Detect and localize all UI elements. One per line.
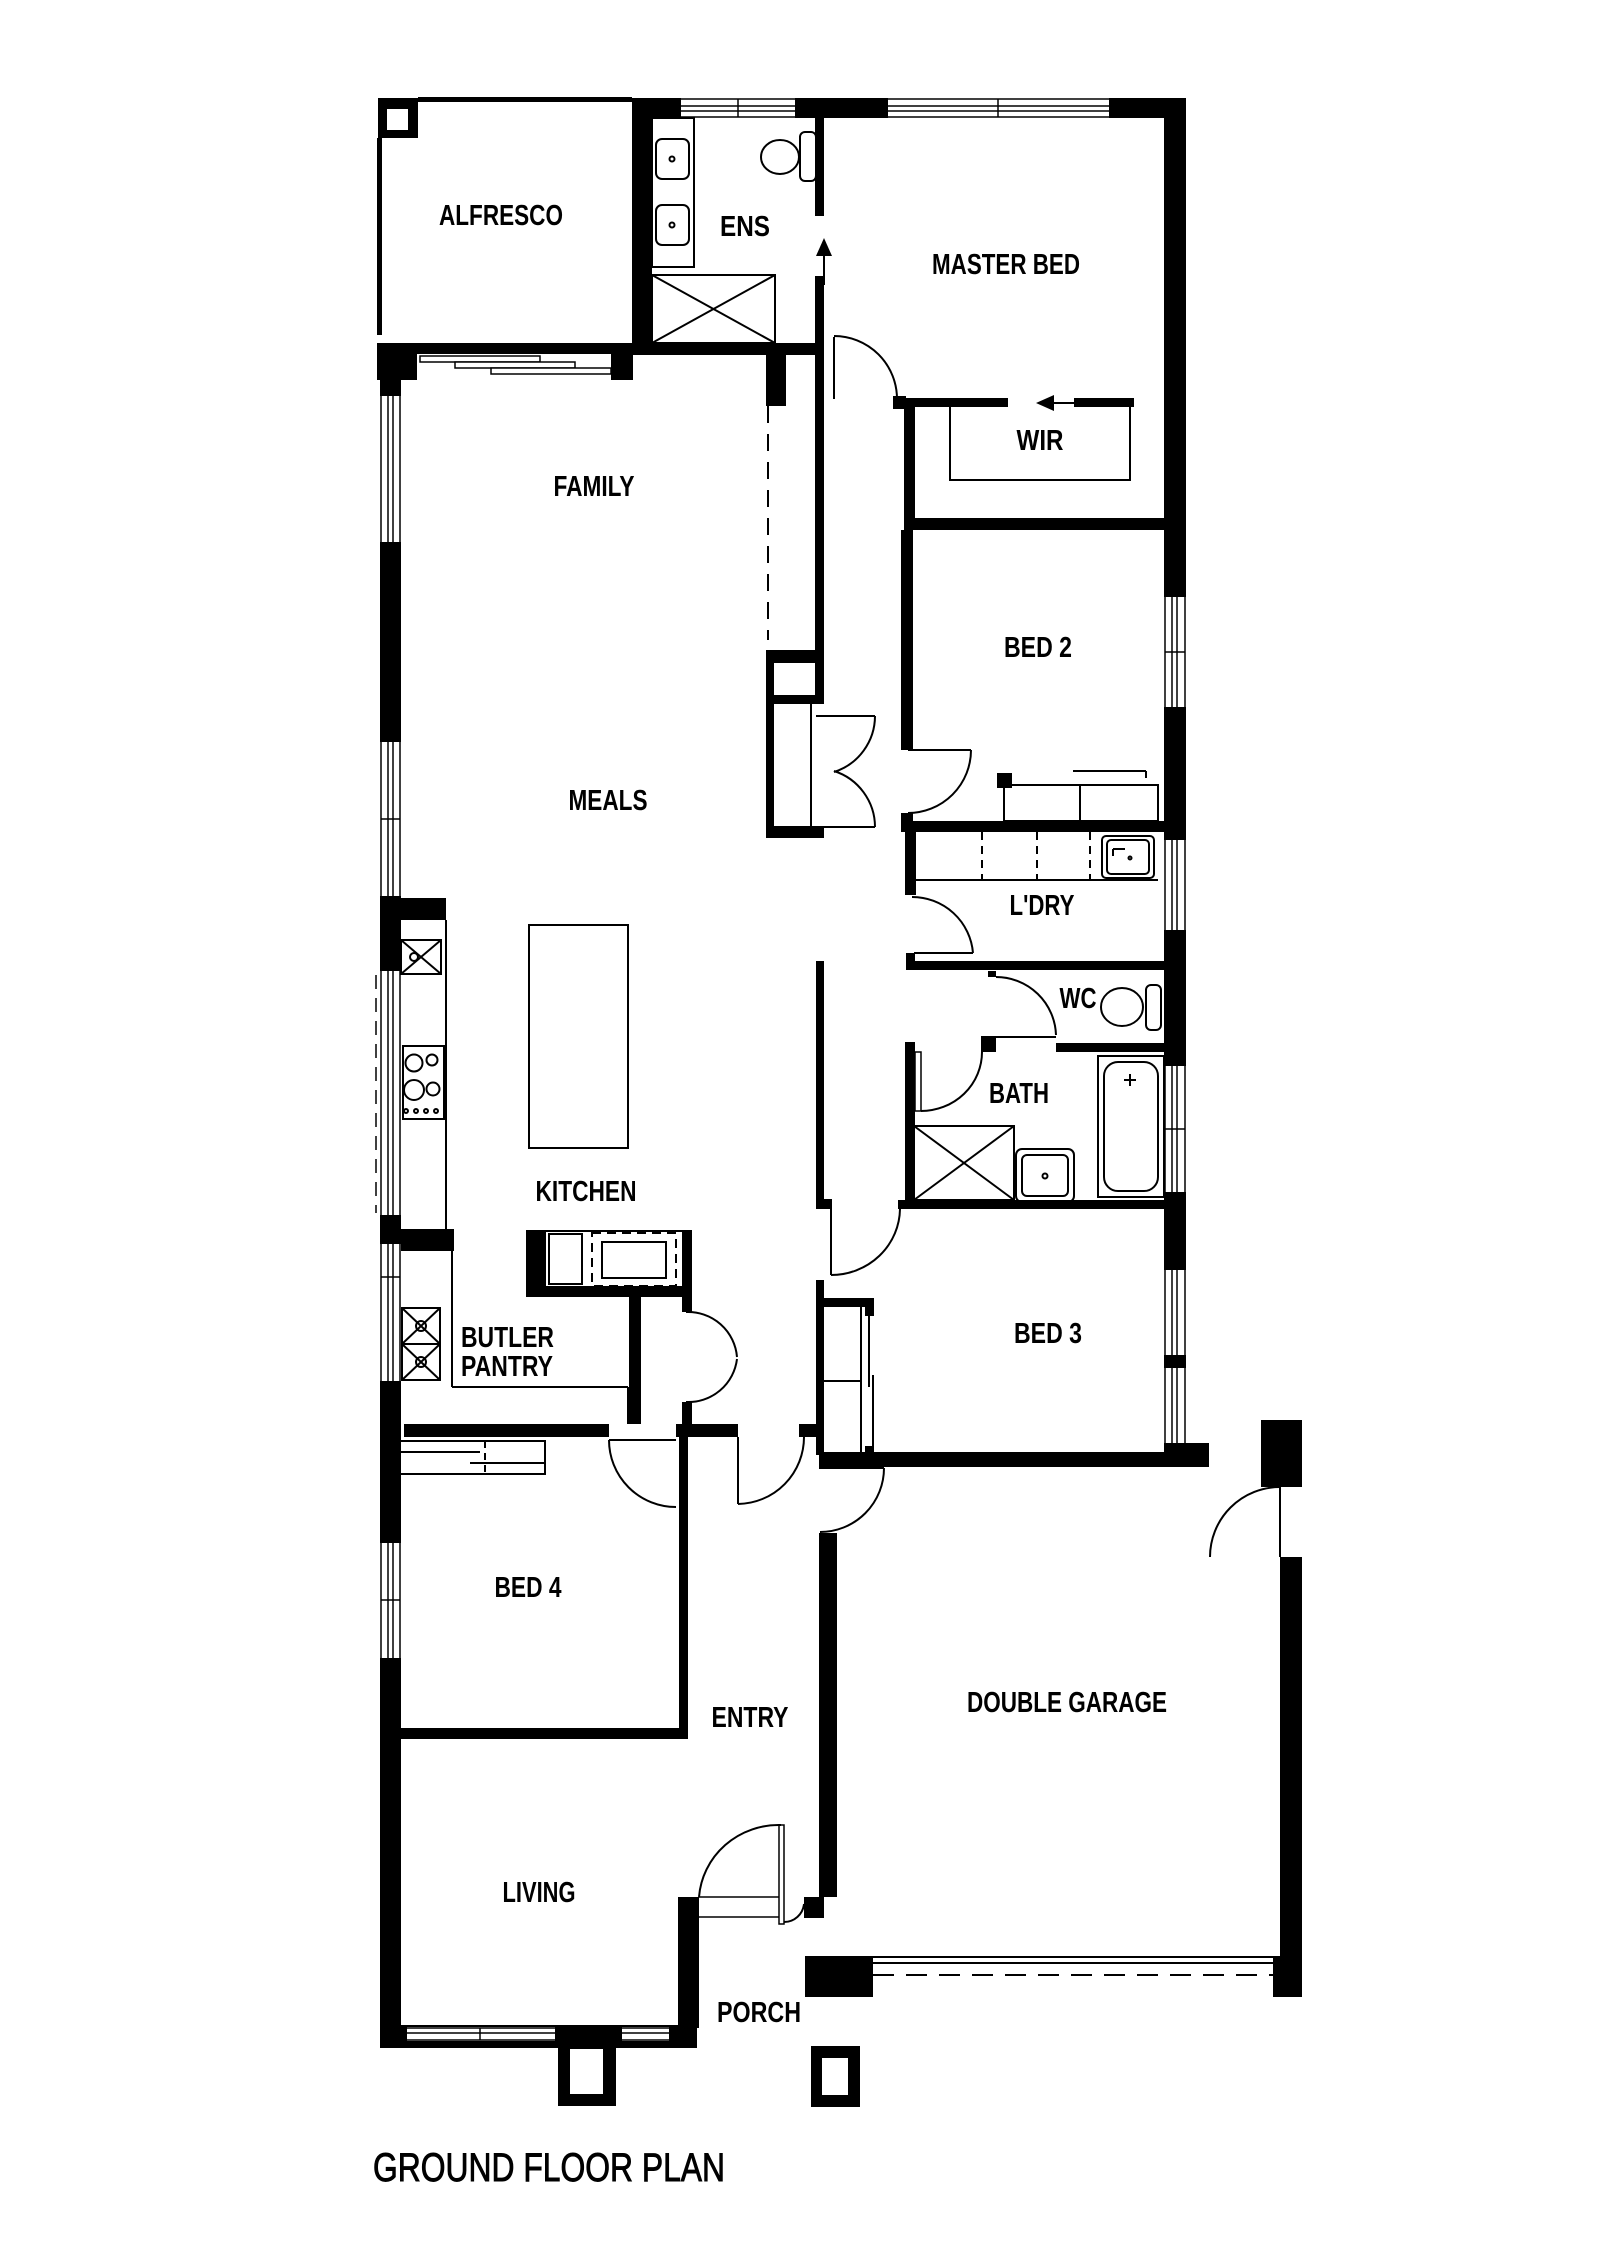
svg-text:WC: WC bbox=[1060, 983, 1097, 1015]
svg-text:BED 4: BED 4 bbox=[495, 1572, 562, 1604]
svg-text:WIR: WIR bbox=[1017, 425, 1064, 457]
svg-text:BUTLER: BUTLER bbox=[461, 1322, 554, 1354]
svg-text:L'DRY: L'DRY bbox=[1010, 890, 1075, 922]
svg-text:PANTRY: PANTRY bbox=[461, 1351, 553, 1383]
svg-text:MEALS: MEALS bbox=[569, 785, 648, 817]
svg-text:BED 2: BED 2 bbox=[1004, 632, 1072, 664]
svg-text:ENS: ENS bbox=[720, 211, 770, 243]
svg-text:GROUND FLOOR PLAN: GROUND FLOOR PLAN bbox=[373, 2146, 725, 2190]
svg-text:BATH: BATH bbox=[989, 1078, 1049, 1110]
svg-text:MASTER BED: MASTER BED bbox=[932, 249, 1080, 281]
svg-text:ENTRY: ENTRY bbox=[712, 1702, 789, 1734]
svg-text:DOUBLE GARAGE: DOUBLE GARAGE bbox=[967, 1687, 1167, 1719]
svg-text:LIVING: LIVING bbox=[503, 1877, 576, 1909]
svg-text:KITCHEN: KITCHEN bbox=[536, 1176, 637, 1208]
svg-text:FAMILY: FAMILY bbox=[554, 471, 635, 503]
svg-text:ALFRESCO: ALFRESCO bbox=[439, 200, 563, 232]
svg-text:PORCH: PORCH bbox=[717, 1997, 801, 2029]
svg-text:BED 3: BED 3 bbox=[1014, 1318, 1082, 1350]
